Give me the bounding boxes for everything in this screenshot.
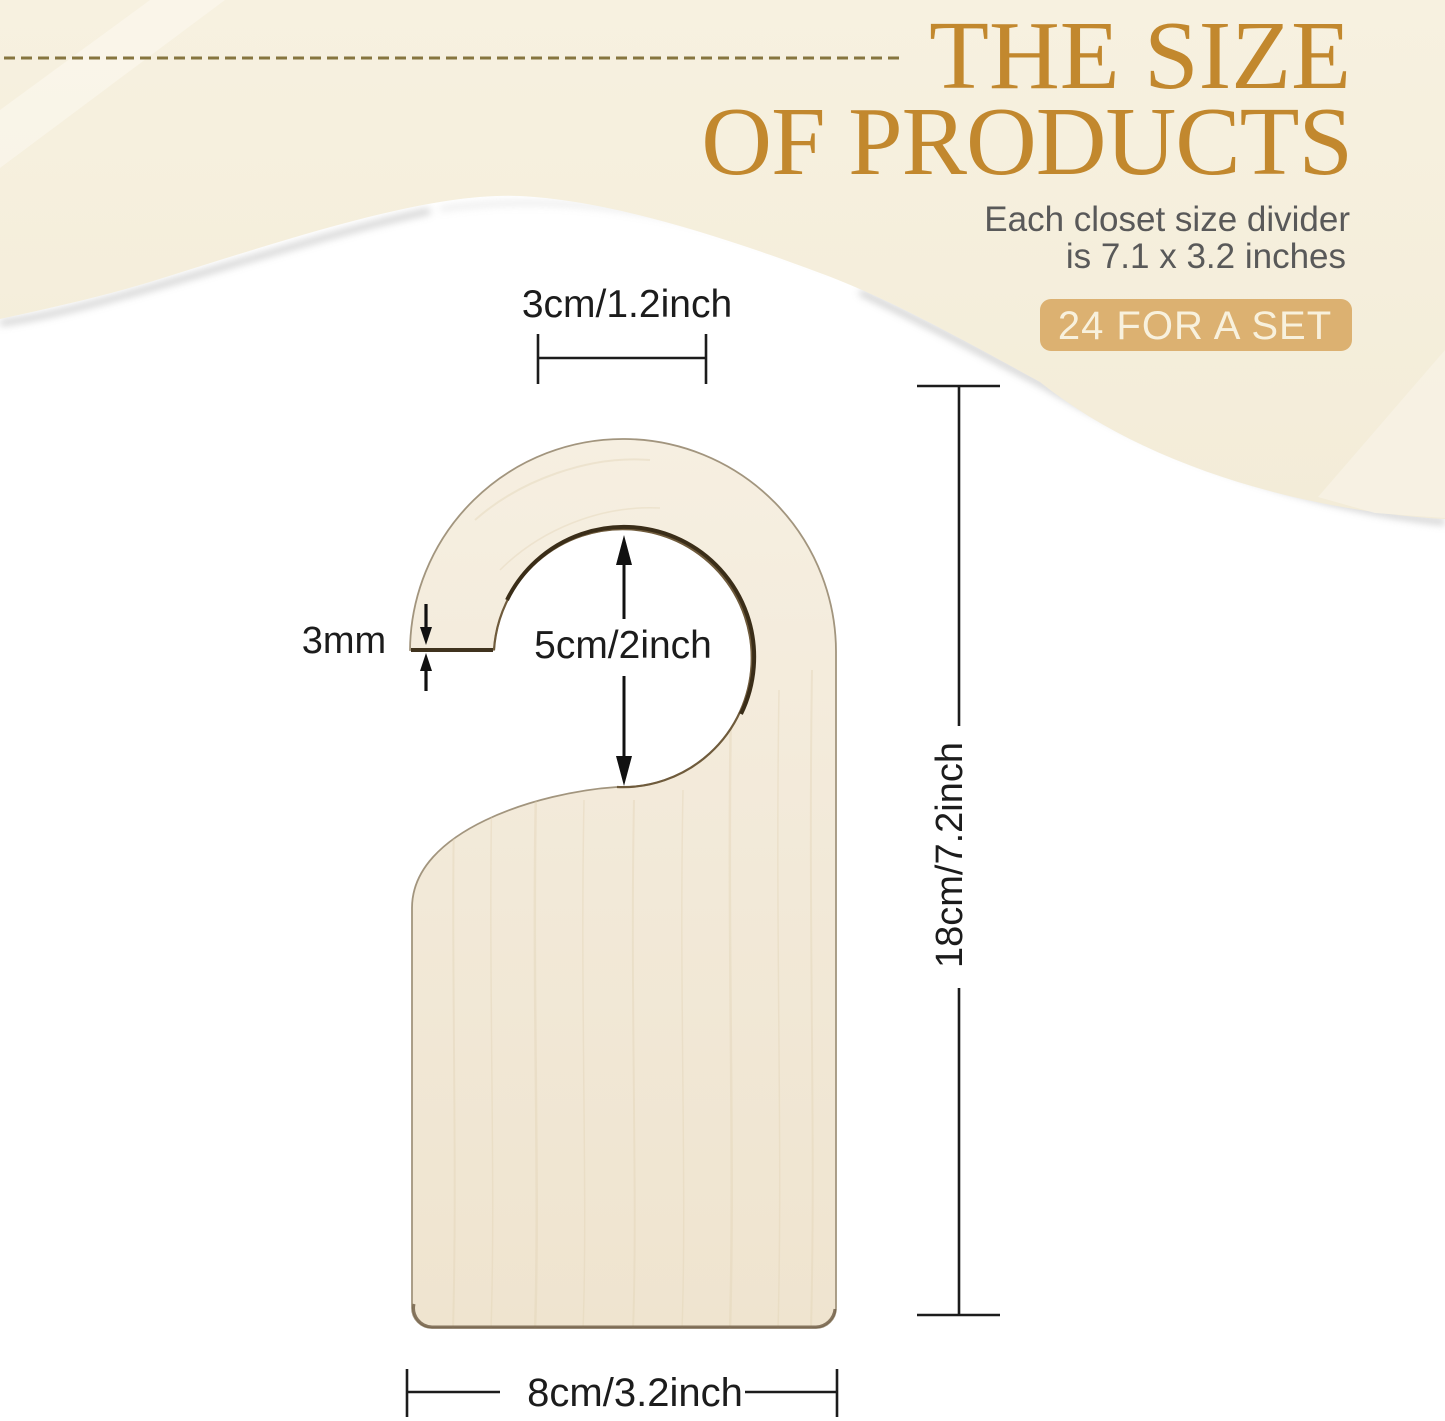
svg-text:18cm/7.2inch: 18cm/7.2inch	[929, 742, 971, 968]
svg-text:3mm: 3mm	[302, 620, 386, 662]
svg-text:8cm/3.2inch: 8cm/3.2inch	[527, 1371, 743, 1415]
svg-text:OF PRODUCTS: OF PRODUCTS	[701, 88, 1352, 196]
svg-text:3cm/1.2inch: 3cm/1.2inch	[522, 283, 732, 326]
svg-text:is 7.1 x 3.2 inches: is 7.1 x 3.2 inches	[1066, 237, 1346, 276]
svg-text:24 FOR A SET: 24 FOR A SET	[1058, 304, 1332, 348]
svg-text:Each closet size divider: Each closet size divider	[984, 200, 1350, 239]
svg-text:5cm/2inch: 5cm/2inch	[534, 624, 712, 667]
